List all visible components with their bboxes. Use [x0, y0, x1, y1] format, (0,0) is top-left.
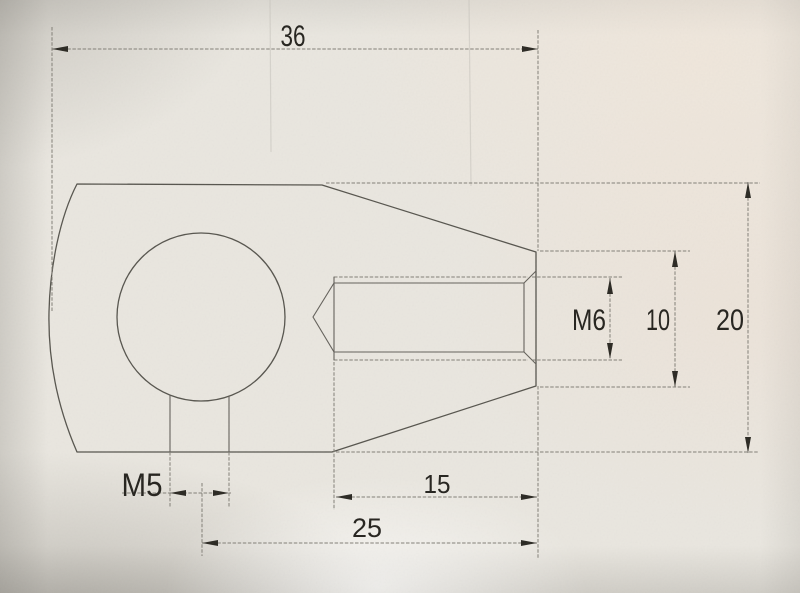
- part-outline-group: [49, 184, 536, 452]
- label-hole-to-end: 25: [352, 513, 382, 543]
- dimension-labels: 36 20 10 M6 M5 15 25: [122, 20, 745, 543]
- label-body-height: 20: [716, 304, 744, 337]
- paper-crease: [469, 0, 471, 186]
- label-shank-diameter: 10: [646, 304, 670, 337]
- label-thread-length: 15: [424, 469, 451, 499]
- arrowhead: [213, 490, 229, 496]
- engineering-drawing: 36 20 10 M6 M5 15 25: [0, 0, 800, 593]
- arrowhead: [52, 46, 68, 52]
- arrowhead: [745, 182, 751, 198]
- arrowhead: [607, 343, 613, 359]
- arrowhead: [170, 490, 186, 496]
- arrowhead: [521, 494, 537, 500]
- technical-drawing-photo: 36 20 10 M6 M5 15 25: [0, 0, 800, 593]
- eye-hole-circle: [117, 233, 285, 401]
- arrowhead: [336, 494, 352, 500]
- internal-thread-group: [313, 271, 536, 364]
- part-outline: [49, 184, 536, 452]
- drill-point: [313, 283, 334, 352]
- arrowhead: [522, 46, 538, 52]
- label-overall-length: 36: [281, 20, 306, 53]
- arrowhead: [672, 251, 678, 267]
- arrowhead: [745, 437, 751, 453]
- arrowhead: [607, 278, 613, 294]
- arrowhead: [672, 371, 678, 387]
- arrowhead: [202, 540, 218, 546]
- arrowhead: [521, 540, 537, 546]
- paper-crease: [270, 0, 271, 152]
- label-thread-spec: M6: [572, 304, 606, 337]
- label-bottom-thread-spec: M5: [122, 467, 163, 503]
- thread-chamfer-bottom: [524, 352, 536, 364]
